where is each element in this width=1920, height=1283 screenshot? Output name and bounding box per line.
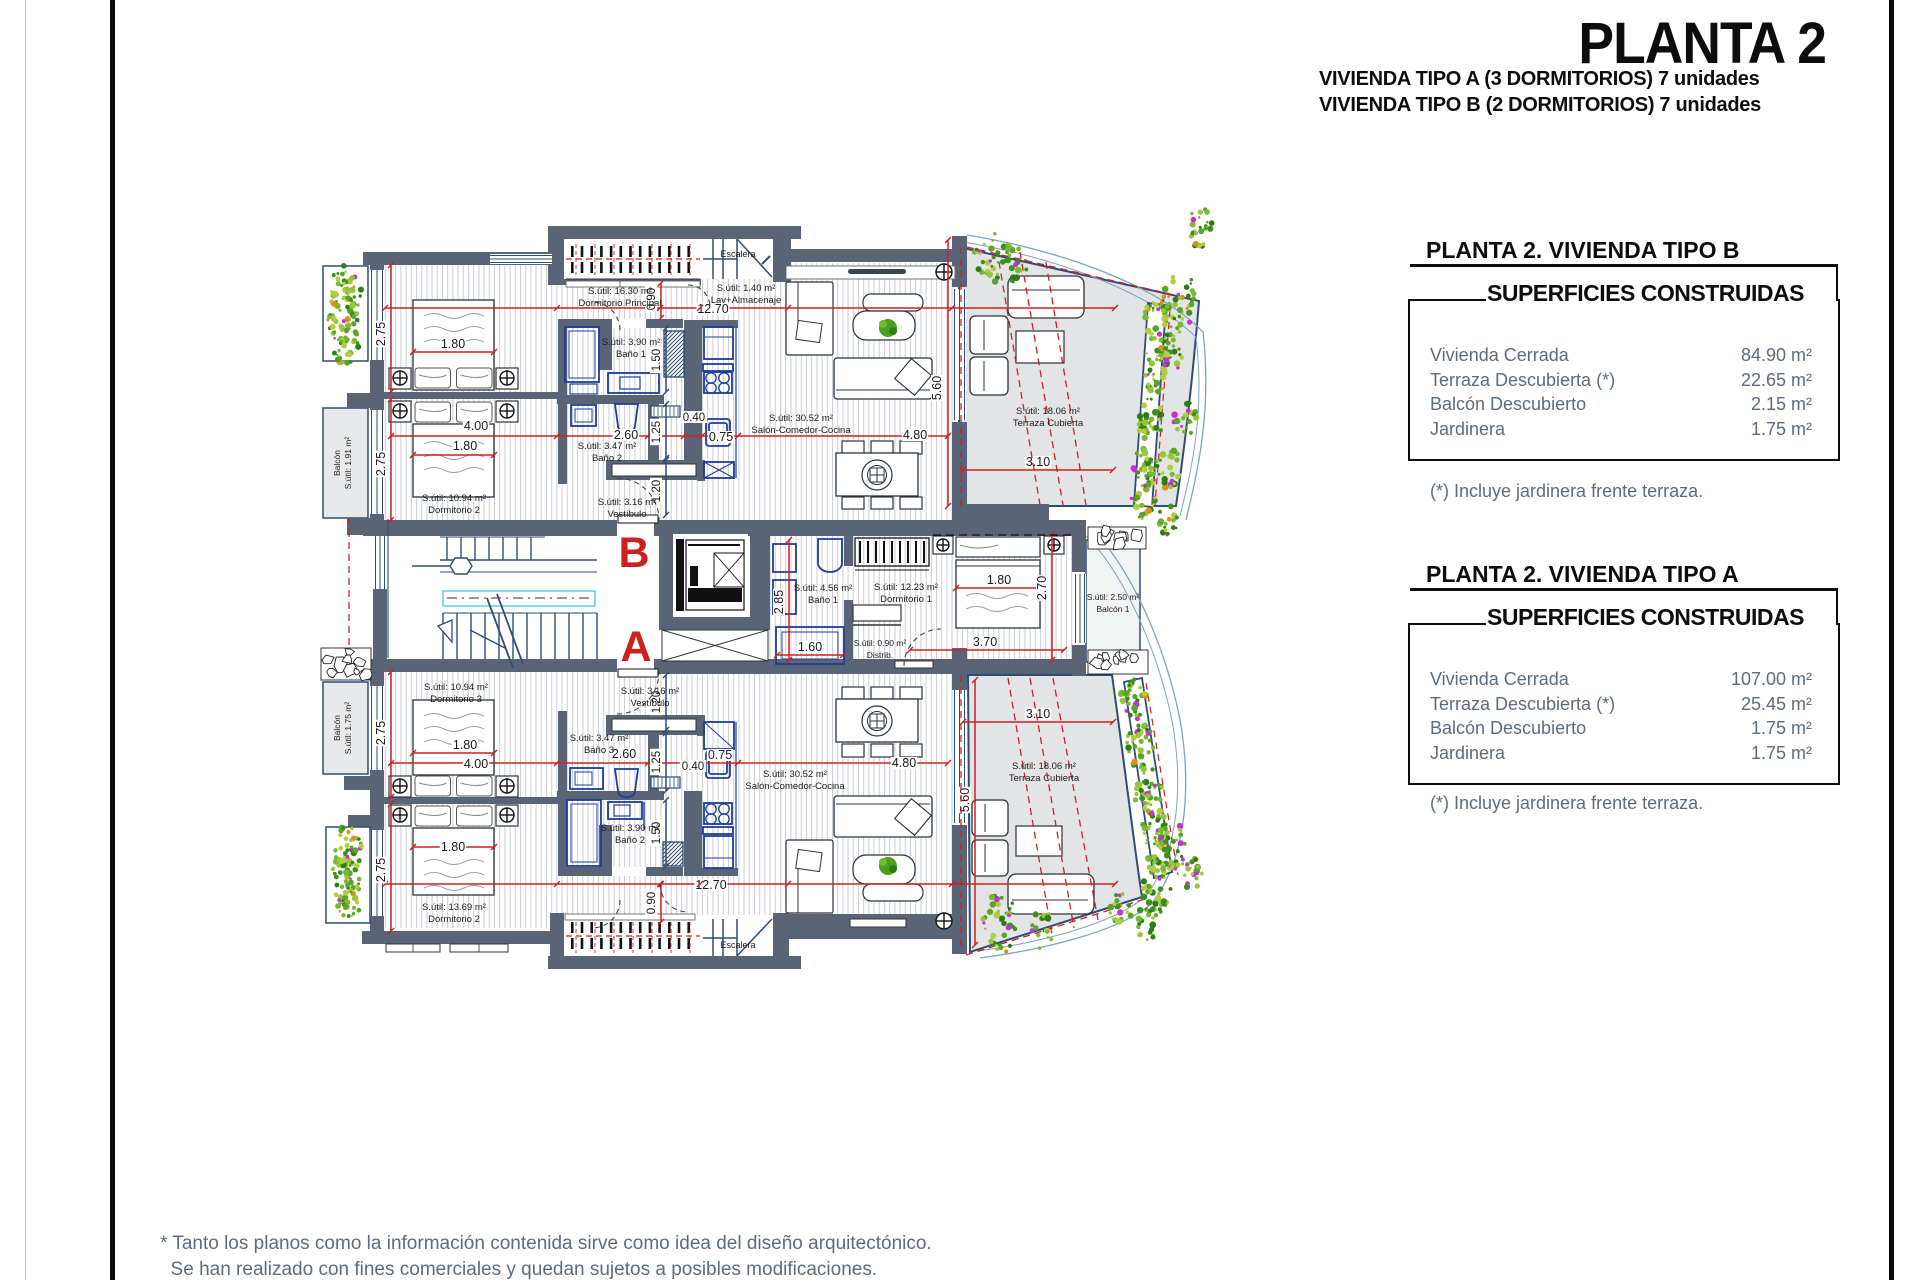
svg-text:1.80: 1.80 (453, 439, 477, 453)
svg-text:3.70: 3.70 (973, 635, 997, 649)
svg-text:Dormitorio 3: Dormitorio 3 (430, 694, 482, 705)
svg-text:S.útil: 18.06 m²: S.útil: 18.06 m² (1016, 406, 1080, 417)
svg-text:Salón-Comedor-Cocina: Salón-Comedor-Cocina (745, 781, 845, 792)
svg-text:1.80: 1.80 (441, 337, 465, 351)
svg-text:3.10: 3.10 (1026, 455, 1050, 469)
svg-text:2.60: 2.60 (614, 428, 638, 442)
svg-text:Dormitorio 2: Dormitorio 2 (428, 505, 480, 516)
svg-text:2.60: 2.60 (612, 747, 636, 761)
svg-text:Escalera: Escalera (720, 249, 755, 259)
svg-text:Terraza Cubierta: Terraza Cubierta (1009, 773, 1080, 784)
svg-text:S.útil: 3.16 m²: S.útil: 3.16 m² (621, 686, 680, 697)
svg-text:B: B (618, 529, 649, 577)
svg-text:S.útil: 3.16 m²: S.útil: 3.16 m² (598, 497, 657, 508)
svg-text:Balcón 1: Balcón 1 (1096, 604, 1129, 614)
svg-text:3.10: 3.10 (1026, 707, 1050, 721)
svg-text:S.útil: 16.30 m²: S.útil: 16.30 m² (588, 286, 652, 297)
svg-text:S.útil: 1.91 m²: S.útil: 1.91 m² (343, 437, 353, 490)
svg-text:S.útil: 13.69 m²: S.útil: 13.69 m² (422, 902, 486, 913)
svg-text:1.25: 1.25 (651, 751, 663, 773)
svg-text:Salón-Comedor-Cocina: Salón-Comedor-Cocina (751, 425, 851, 436)
svg-text:Baño 1: Baño 1 (616, 349, 646, 360)
svg-text:Distrib.: Distrib. (867, 650, 893, 660)
svg-text:Dormitorio Principal: Dormitorio Principal (579, 298, 662, 309)
svg-text:1.25: 1.25 (651, 421, 663, 443)
svg-text:Balcón: Balcón (332, 450, 342, 476)
svg-text:12.70: 12.70 (695, 878, 726, 892)
svg-text:0.75: 0.75 (708, 748, 732, 762)
svg-text:1.80: 1.80 (987, 573, 1011, 587)
svg-text:2.70: 2.70 (1035, 576, 1049, 600)
svg-text:2.75: 2.75 (374, 452, 388, 476)
svg-text:5.60: 5.60 (930, 376, 944, 400)
svg-text:Baño 2: Baño 2 (615, 835, 645, 846)
svg-text:1.50: 1.50 (651, 349, 663, 371)
svg-text:Lav+Almacenaje: Lav+Almacenaje (711, 295, 782, 306)
svg-text:S.útil: 18.06 m²: S.útil: 18.06 m² (1012, 761, 1076, 772)
svg-text:S.útil: 2.50 m²: S.útil: 2.50 m² (1087, 592, 1140, 602)
svg-text:2.85: 2.85 (772, 590, 786, 614)
svg-text:4.00: 4.00 (464, 419, 488, 433)
svg-text:Vestíbulo: Vestíbulo (607, 509, 646, 520)
svg-text:S.útil: 12.23 m²: S.útil: 12.23 m² (874, 582, 938, 593)
svg-text:S.útil: 3.90 m²: S.útil: 3.90 m² (602, 337, 661, 348)
svg-text:Baño 3: Baño 3 (584, 745, 614, 756)
svg-text:S.útil: 30.52 m²: S.útil: 30.52 m² (763, 769, 827, 780)
svg-text:5.60: 5.60 (958, 788, 972, 812)
svg-text:S.útil: 0.90 m²: S.útil: 0.90 m² (854, 638, 907, 648)
svg-text:S.útil: 3.90 m²: S.útil: 3.90 m² (601, 823, 660, 834)
svg-text:0.40: 0.40 (682, 761, 704, 773)
svg-text:S.útil: 10.94 m²: S.útil: 10.94 m² (424, 682, 488, 693)
svg-text:Baño 2: Baño 2 (592, 453, 622, 464)
svg-text:0.75: 0.75 (709, 430, 733, 444)
svg-text:Balcón: Balcón (332, 715, 342, 741)
svg-text:0.90: 0.90 (646, 892, 658, 914)
svg-text:S.útil: 3.47 m²: S.útil: 3.47 m² (578, 441, 637, 452)
svg-text:S.útil: 10.94 m²: S.útil: 10.94 m² (422, 493, 486, 504)
svg-text:2.75: 2.75 (374, 721, 388, 745)
svg-text:S.útil: 1.75 m²: S.útil: 1.75 m² (343, 702, 353, 755)
svg-text:2.75: 2.75 (374, 322, 388, 346)
svg-text:1.60: 1.60 (798, 640, 822, 654)
svg-text:1.80: 1.80 (453, 738, 477, 752)
svg-text:Escalera: Escalera (720, 940, 755, 950)
svg-text:4.80: 4.80 (903, 428, 927, 442)
svg-text:0.40: 0.40 (683, 412, 705, 424)
svg-text:Dormitorio 2: Dormitorio 2 (428, 914, 480, 925)
svg-text:Baño 1: Baño 1 (808, 595, 838, 606)
svg-text:S.útil: 4.56 m²: S.útil: 4.56 m² (794, 583, 853, 594)
svg-text:S.útil: 3.47 m²: S.útil: 3.47 m² (570, 733, 629, 744)
svg-text:1.80: 1.80 (441, 840, 465, 854)
svg-text:4.00: 4.00 (464, 757, 488, 771)
svg-text:Dormitorio 1: Dormitorio 1 (880, 594, 932, 605)
svg-text:Vestíbulo: Vestíbulo (630, 698, 669, 709)
svg-text:A: A (620, 623, 651, 671)
svg-text:S.útil: 30.52 m²: S.útil: 30.52 m² (769, 413, 833, 424)
svg-text:2.75: 2.75 (374, 858, 388, 882)
svg-text:Terraza Cubierta: Terraza Cubierta (1013, 418, 1084, 429)
svg-text:4.80: 4.80 (892, 756, 916, 770)
svg-text:S.útil: 1.40 m²: S.útil: 1.40 m² (717, 283, 776, 294)
